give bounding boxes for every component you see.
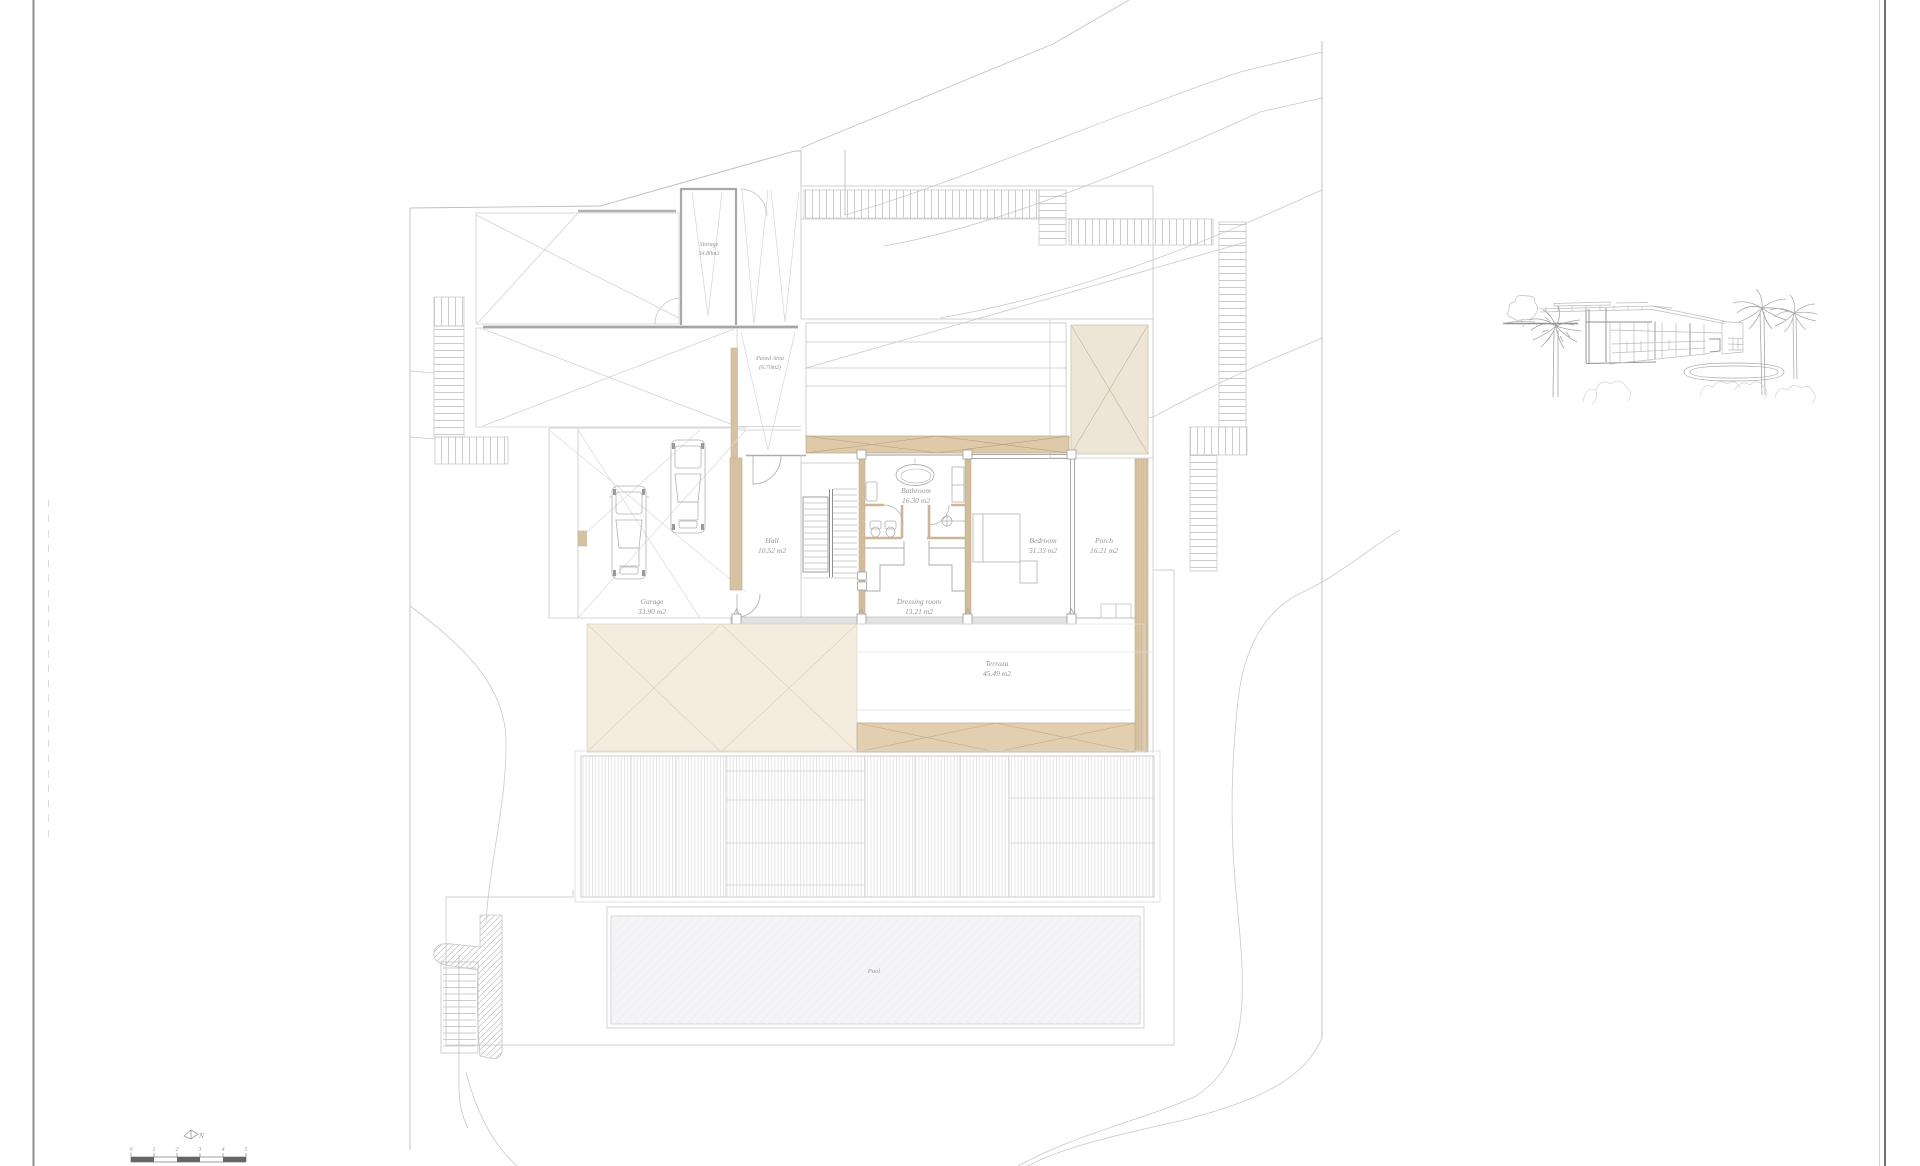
svg-text:16.30 m2: 16.30 m2 xyxy=(902,496,930,505)
svg-text:N: N xyxy=(198,1131,205,1140)
svg-text:Dressing room: Dressing room xyxy=(896,597,942,606)
svg-text:Garage: Garage xyxy=(641,597,665,606)
svg-text:Hall: Hall xyxy=(764,536,778,545)
svg-text:5: 5 xyxy=(245,1147,248,1153)
svg-text:33.90 m2: 33.90 m2 xyxy=(637,607,666,616)
svg-text:1: 1 xyxy=(153,1147,156,1153)
svg-text:Porch: Porch xyxy=(1094,536,1113,545)
svg-text:13.21 m2: 13.21 m2 xyxy=(905,607,933,616)
svg-text:34.80m2: 34.80m2 xyxy=(698,250,720,257)
svg-text:45.49 m2: 45.49 m2 xyxy=(983,669,1011,678)
svg-text:31.33 m2: 31.33 m2 xyxy=(1028,546,1057,555)
svg-text:Bathroom: Bathroom xyxy=(901,486,931,495)
svg-text:4: 4 xyxy=(222,1146,225,1153)
svg-text:Terraza: Terraza xyxy=(985,659,1008,668)
svg-text:Bedroom: Bedroom xyxy=(1029,536,1057,545)
svg-text:3: 3 xyxy=(198,1147,202,1153)
svg-text:Storage: Storage xyxy=(700,242,719,248)
svg-text:Pool: Pool xyxy=(867,968,881,975)
svg-text:0: 0 xyxy=(130,1147,133,1153)
svg-text:(6.70m2): (6.70m2) xyxy=(759,364,781,371)
svg-text:2: 2 xyxy=(176,1147,179,1153)
svg-text:16.21 m2: 16.21 m2 xyxy=(1090,546,1118,555)
svg-text:Paved Area: Paved Area xyxy=(755,356,784,362)
svg-text:10.52 m2: 10.52 m2 xyxy=(758,546,786,555)
